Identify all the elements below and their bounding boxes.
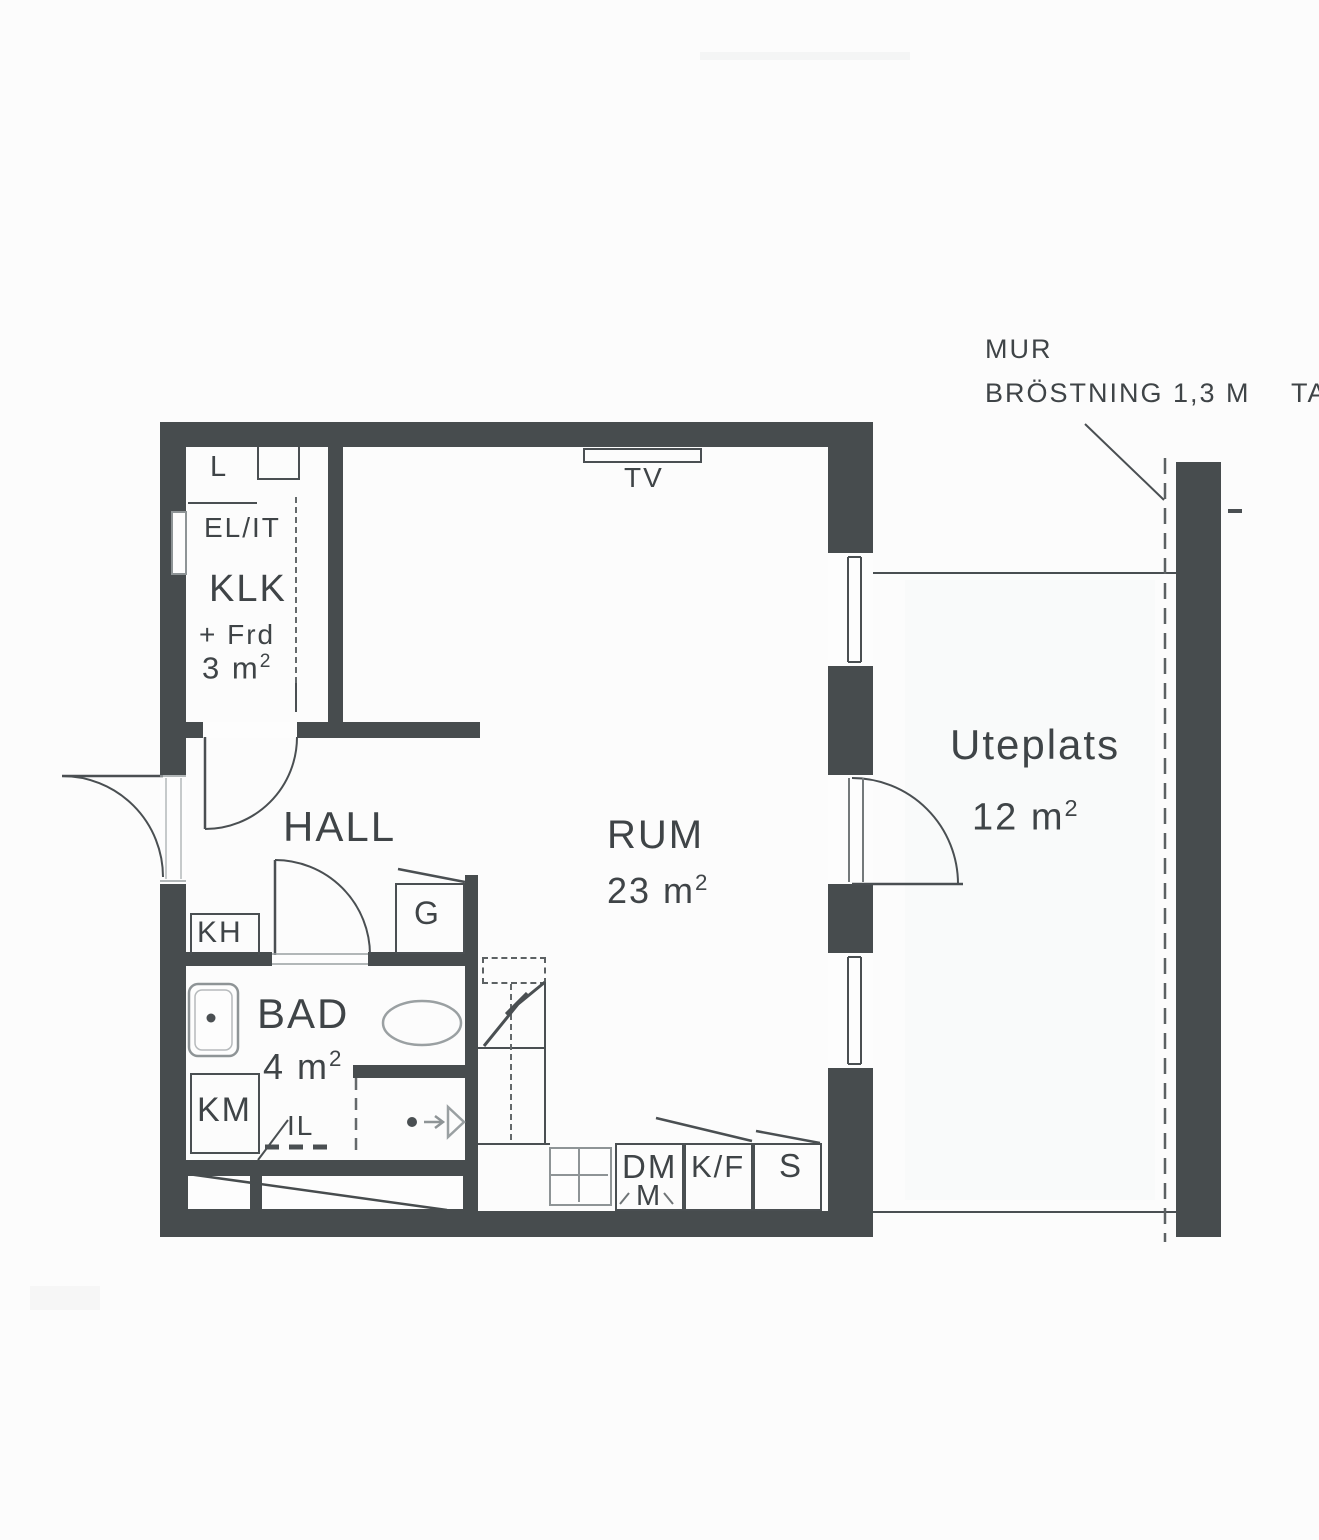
bath-sink-drain (207, 1014, 216, 1023)
entry-door-arc (62, 776, 163, 877)
counter-diagonal-1 (656, 1118, 752, 1141)
km-washer-label: KM (197, 1093, 252, 1127)
floor-drain-dot (407, 1117, 417, 1127)
ta-label-partial: TA (1291, 380, 1319, 407)
uteplats-door-arc (852, 778, 958, 884)
il-leader-line (258, 1120, 288, 1160)
tv-label: TV (624, 464, 664, 492)
cabinet-zigzag (484, 982, 545, 1046)
uteplats-area-label: 12 m2 (972, 797, 1078, 837)
bathtub (383, 1001, 461, 1045)
stove-label: S (779, 1149, 803, 1182)
bad-room-label: BAD (257, 993, 349, 1035)
micro-label: M (636, 1182, 662, 1211)
klk-sub-label: + Frd (199, 621, 275, 649)
counter-diagonal-2 (756, 1131, 820, 1143)
m-tick-left (620, 1193, 629, 1204)
mur-label-line1: MUR (985, 336, 1053, 363)
niche-diagonal (188, 1174, 447, 1210)
g-closet-diagonal (398, 869, 465, 882)
m-tick-right (664, 1193, 673, 1204)
hall-room-label: HALL (283, 806, 396, 848)
rum-area-label: 23 m2 (607, 872, 707, 909)
floor-plan: MUR BRÖSTNING 1,3 M TA L EL/IT KLK + Frd… (0, 0, 1319, 1540)
mur-label-line2: BRÖSTNING 1,3 M (985, 380, 1251, 407)
bad-area-label: 4 m2 (263, 1048, 341, 1085)
klk-area-label: 3 m2 (202, 652, 270, 683)
mur-leader-line (1085, 424, 1164, 500)
drain-triangle (448, 1107, 464, 1137)
plan-linework (0, 0, 1319, 1540)
el-it-label: EL/IT (204, 514, 281, 542)
uteplats-room-label: Uteplats (950, 724, 1120, 766)
linen-cabinet-label: L (210, 453, 228, 482)
bad-door-arc (275, 860, 370, 955)
dishwasher-label: DM (622, 1150, 677, 1183)
fridge-freezer-label: K/F (691, 1151, 745, 1182)
klk-room-label: KLK (209, 570, 287, 608)
il-label: IL (287, 1112, 314, 1140)
rum-room-label: RUM (607, 815, 704, 855)
g-closet-label: G (414, 897, 441, 929)
kh-closet-label: KH (197, 918, 243, 948)
